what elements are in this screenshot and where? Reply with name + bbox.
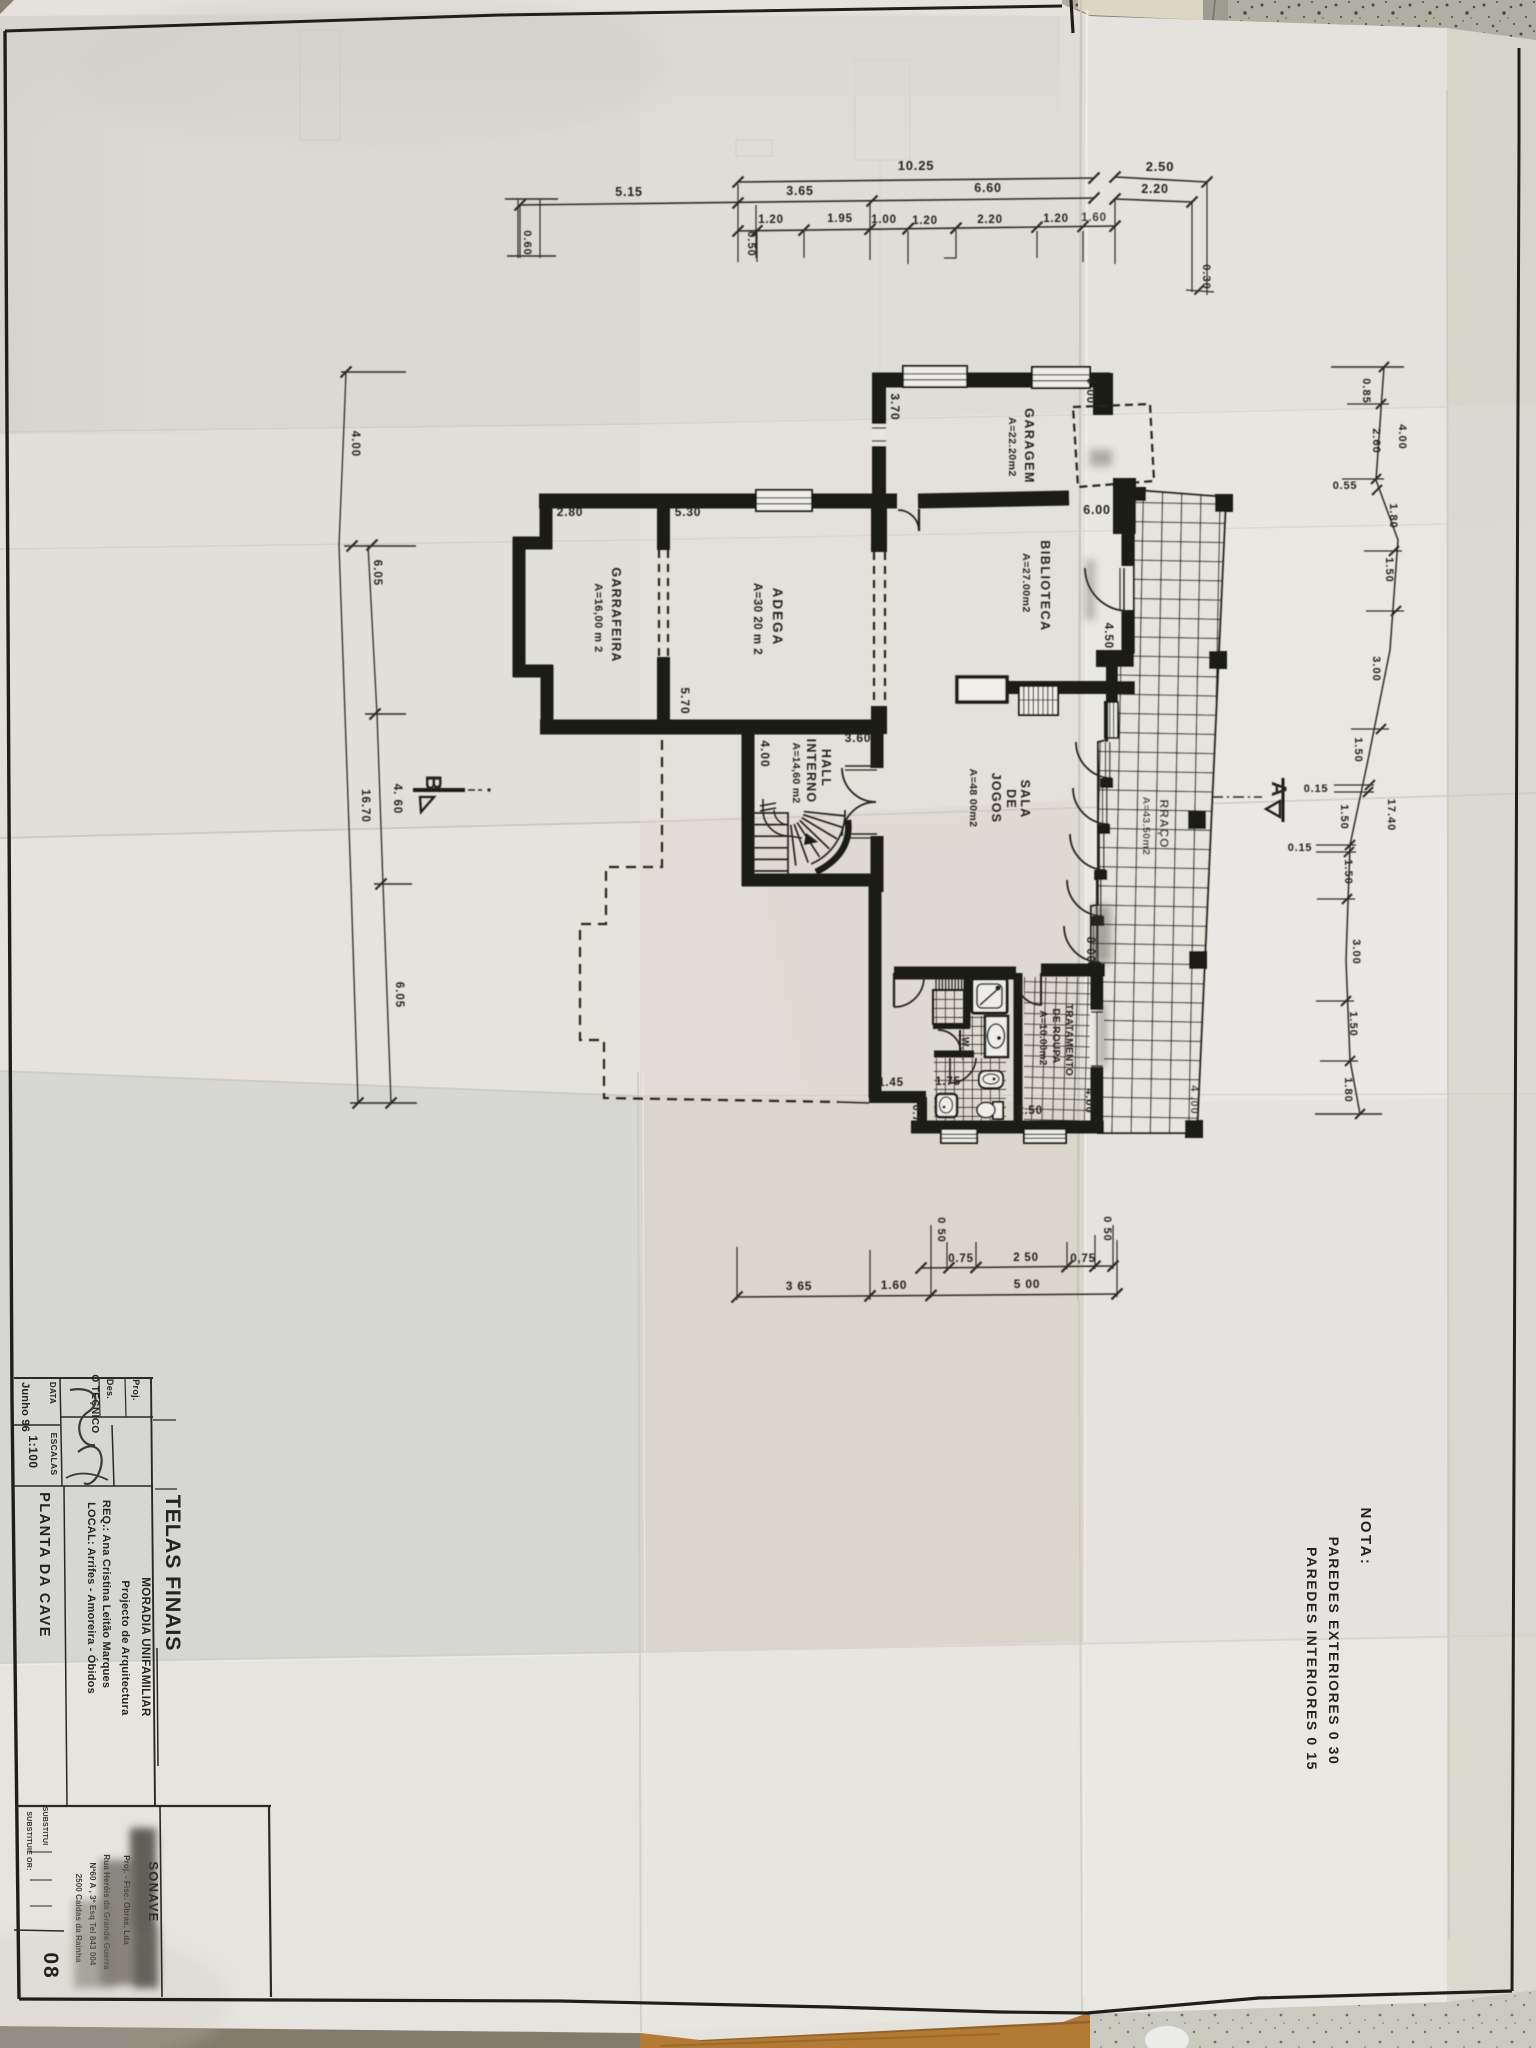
svg-text:A=10.00m2: A=10.00m2: [1037, 1010, 1048, 1065]
svg-text:1.20: 1.20: [1043, 213, 1069, 225]
svg-text:1.20: 1.20: [758, 214, 784, 226]
svg-text:1.50: 1.50: [1383, 557, 1395, 582]
svg-text:PLANTA DA CAVE: PLANTA DA CAVE: [36, 1492, 52, 1638]
svg-text:W.C.: W.C.: [959, 1037, 970, 1061]
svg-text:0.60: 0.60: [521, 230, 533, 255]
svg-text:BIBLIOTECA: BIBLIOTECA: [1038, 540, 1052, 631]
svg-text:A=16,00 m 2: A=16,00 m 2: [592, 583, 604, 652]
svg-text:A=48 00m2: A=48 00m2: [967, 769, 979, 828]
svg-text:3.65: 3.65: [786, 184, 814, 198]
svg-text:4.00: 4.00: [349, 431, 361, 457]
svg-text:A=43.50m2: A=43.50m2: [1140, 797, 1152, 856]
svg-text:ADEGA: ADEGA: [770, 588, 785, 647]
svg-text:2.50: 2.50: [1146, 159, 1175, 174]
svg-text:5.70: 5.70: [678, 687, 692, 714]
svg-text:1.45: 1.45: [878, 1077, 904, 1089]
svg-text:2.80: 2.80: [557, 505, 584, 519]
svg-text:0.85: 0.85: [1360, 378, 1372, 403]
svg-text:8 00: 8 00: [1084, 937, 1096, 963]
svg-text:2 50: 2 50: [1013, 1252, 1039, 1264]
svg-text:6.05: 6.05: [393, 982, 405, 1008]
svg-text:1.60: 1.60: [1081, 212, 1107, 224]
svg-text:SALA: SALA: [1018, 780, 1032, 819]
svg-text:3.00: 3.00: [1350, 939, 1362, 964]
svg-text:PAREDES INTERIORES 0 15: PAREDES INTERIORES 0 15: [1304, 1547, 1320, 1771]
svg-text:6.60: 6.60: [974, 181, 1002, 195]
svg-text:3.70: 3.70: [888, 393, 902, 420]
svg-text:0.50: 0.50: [745, 231, 757, 256]
svg-text:0.70: 0.70: [910, 1105, 922, 1129]
svg-text:6 00: 6 00: [1084, 378, 1096, 404]
svg-text:ESCALAS: ESCALAS: [49, 1433, 59, 1476]
svg-text:0.30: 0.30: [1200, 264, 1212, 289]
svg-text:2.50: 2.50: [1017, 1105, 1043, 1117]
svg-text:DE: DE: [1004, 789, 1018, 809]
svg-text:0,75: 0,75: [1070, 1253, 1096, 1265]
svg-text:NOTA:: NOTA:: [1357, 1508, 1374, 1567]
svg-text:0.15: 0.15: [1304, 783, 1329, 795]
svg-text:PAREDES EXTERIORES 0 30: PAREDES EXTERIORES 0 30: [1326, 1537, 1342, 1766]
svg-text:6.05: 6.05: [371, 560, 383, 586]
svg-text:2.20: 2.20: [977, 214, 1003, 226]
svg-text:0.75: 0.75: [948, 1253, 974, 1265]
svg-text:3.60: 3.60: [845, 731, 872, 745]
svg-text:A=22.20m2: A=22.20m2: [1006, 417, 1018, 477]
svg-text:A: A: [1267, 781, 1290, 796]
svg-text:5.30: 5.30: [675, 505, 702, 519]
svg-text:4. 60: 4. 60: [391, 784, 403, 815]
svg-text:1.80: 1.80: [1342, 1077, 1354, 1102]
svg-text:08: 08: [39, 1952, 62, 1979]
svg-text:5.15: 5.15: [615, 185, 643, 199]
svg-text:TRATAMENTO: TRATAMENTO: [1063, 1004, 1074, 1076]
svg-text:LOCAL: Arrifes - Amoreira - Ó: LOCAL: Arrifes - Amoreira - Óbidos: [85, 1502, 98, 1694]
svg-text:0 50: 0 50: [935, 1217, 947, 1242]
svg-text:Des.: Des.: [105, 1379, 115, 1399]
svg-text:10.25: 10.25: [898, 158, 935, 173]
svg-text:6.00: 6.00: [1083, 503, 1111, 517]
svg-text:1.00: 1.00: [871, 214, 897, 226]
svg-text:1.75: 1.75: [935, 1076, 961, 1088]
svg-text:A=27.00m2: A=27.00m2: [1020, 553, 1032, 613]
svg-text:1.50: 1.50: [1352, 737, 1364, 762]
svg-text:3.00: 3.00: [1370, 656, 1382, 681]
svg-text:4.50: 4.50: [1102, 623, 1114, 649]
svg-text:4 .00: 4 .00: [1188, 1085, 1200, 1114]
svg-text:GARAGEM: GARAGEM: [1022, 408, 1036, 484]
svg-text:1.50: 1.50: [1342, 859, 1354, 884]
svg-text:0.15: 0.15: [1288, 842, 1313, 854]
svg-text:3 65: 3 65: [786, 1279, 813, 1293]
svg-text:A=30 20 m 2: A=30 20 m 2: [751, 583, 763, 655]
svg-text:5 00: 5 00: [1014, 1277, 1041, 1291]
svg-text:1.60: 1.60: [881, 1278, 908, 1292]
svg-text:INTERNO: INTERNO: [804, 739, 818, 804]
svg-text:1.50: 1.50: [1347, 1011, 1359, 1036]
svg-text:JOGOS: JOGOS: [989, 773, 1003, 823]
svg-text:TELAS FINAIS: TELAS FINAIS: [161, 1495, 185, 1652]
svg-text:1.50: 1.50: [1338, 804, 1350, 829]
svg-text:MORADIA UNIFAMILIAR: MORADIA UNIFAMILIAR: [139, 1577, 151, 1717]
svg-text:A=14,60 m2: A=14,60 m2: [790, 742, 802, 803]
svg-text:GARRAFEIRA: GARRAFEIRA: [609, 567, 623, 662]
svg-text:1.80: 1.80: [1387, 503, 1399, 528]
svg-text:4.00: 4.00: [1396, 424, 1408, 449]
svg-text:SUBSTITUI: SUBSTITUI: [41, 1807, 48, 1846]
svg-text:2.60: 2.60: [1370, 428, 1382, 453]
svg-text:HALL: HALL: [819, 749, 833, 787]
svg-text:DATA: DATA: [48, 1382, 57, 1404]
svg-text:17.40: 17.40: [1385, 799, 1397, 832]
svg-text:Projecto de Arquitectura: Projecto de Arquitectura: [119, 1580, 131, 1716]
svg-text:1.95: 1.95: [827, 213, 853, 225]
svg-text:1.20: 1.20: [912, 215, 938, 227]
svg-text:4.00: 4.00: [758, 740, 772, 767]
svg-text:Junho 96: Junho 96: [19, 1382, 31, 1432]
svg-text:1:100: 1:100: [26, 1435, 40, 1468]
svg-text:DE ROUPA: DE ROUPA: [1050, 1008, 1061, 1063]
svg-text:B: B: [421, 775, 446, 791]
svg-text:2.20: 2.20: [1141, 182, 1169, 196]
svg-text:RRAÇO: RRAÇO: [1157, 800, 1171, 849]
svg-text:SUBSTITUIE OR:: SUBSTITUIE OR:: [25, 1811, 32, 1870]
svg-text:16.70: 16.70: [359, 789, 371, 823]
svg-text:0.55: 0.55: [1333, 480, 1358, 492]
svg-text:REQ.: Ana Cristina Leitão Mar: REQ.: Ana Cristina Leitão Marques: [100, 1500, 112, 1688]
svg-text:0 50: 0 50: [1101, 1216, 1113, 1241]
svg-text:Proj.: Proj.: [131, 1379, 141, 1401]
svg-text:4.00: 4.00: [1083, 1088, 1095, 1113]
